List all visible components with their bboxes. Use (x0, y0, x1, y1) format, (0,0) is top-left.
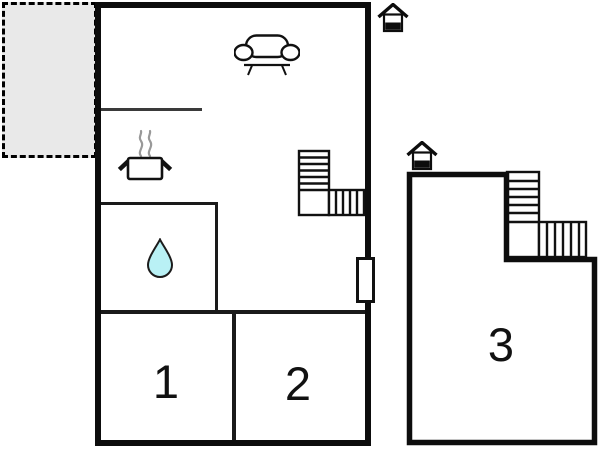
stairs-icon (507, 172, 586, 257)
kitchen-divider-wall (101, 108, 202, 111)
door-marker (356, 257, 375, 303)
water-drop-icon (145, 238, 175, 278)
bathroom-right-wall (215, 202, 218, 313)
floor-plan: 1 2 3 (0, 0, 600, 451)
terrace-area (2, 2, 97, 158)
stairs-icon (297, 149, 367, 217)
annex-building-outline (410, 175, 595, 443)
annex-building (404, 169, 600, 448)
stove-icon (116, 126, 174, 182)
room1-label: 1 (136, 351, 196, 411)
entrance-icon (377, 3, 409, 33)
entrance-icon (406, 141, 438, 171)
room2-label: 2 (268, 353, 328, 413)
bedroom-divider-wall (232, 312, 236, 440)
sofa-icon (234, 33, 300, 77)
bathroom-top-wall (101, 202, 218, 205)
room3-label: 3 (471, 314, 531, 374)
